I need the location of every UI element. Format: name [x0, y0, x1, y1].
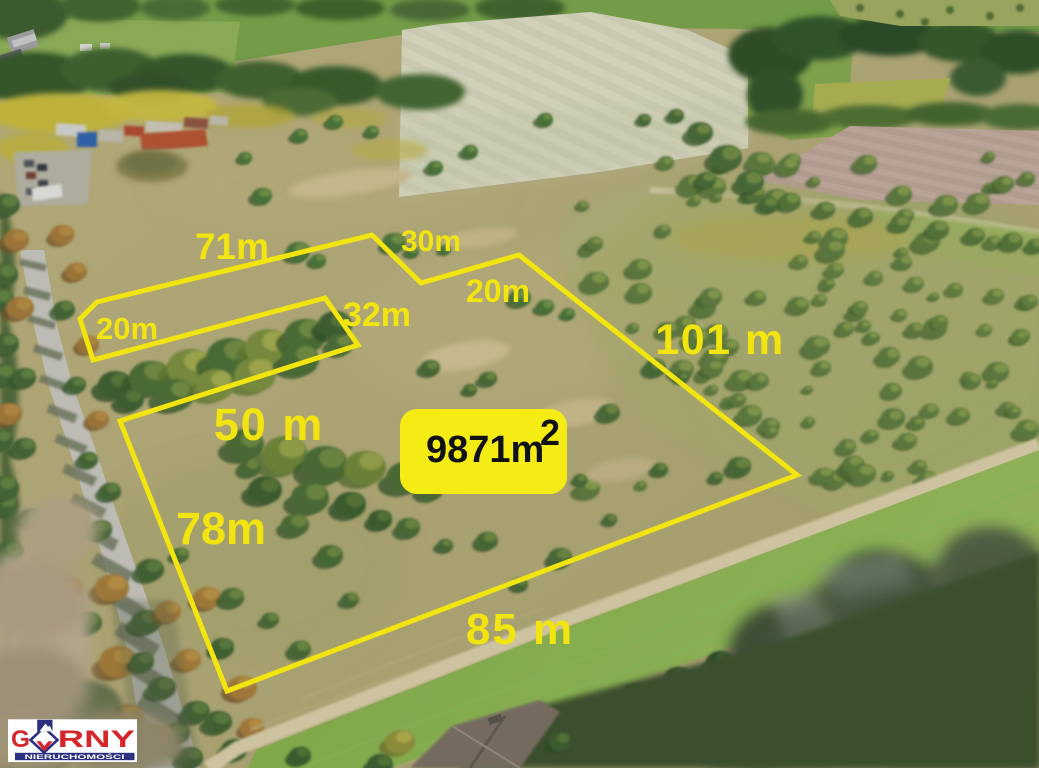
svg-text:32m: 32m: [343, 296, 411, 334]
svg-text:9871m: 9871m: [426, 429, 544, 471]
svg-text:NIERUCHOMOŚCI: NIERUCHOMOŚCI: [25, 754, 126, 761]
svg-text:20m: 20m: [96, 311, 158, 346]
svg-text:50 m: 50 m: [214, 399, 325, 450]
svg-text:20m: 20m: [466, 273, 530, 309]
svg-text:78m: 78m: [176, 503, 266, 554]
svg-text:RNY: RNY: [58, 726, 135, 753]
svg-text:2: 2: [540, 412, 560, 453]
svg-text:71m: 71m: [195, 226, 269, 267]
svg-text:101 m: 101 m: [655, 316, 784, 364]
svg-text:30m: 30m: [401, 225, 461, 258]
svg-text:85 m: 85 m: [466, 605, 574, 654]
svg-text:G: G: [11, 726, 30, 753]
